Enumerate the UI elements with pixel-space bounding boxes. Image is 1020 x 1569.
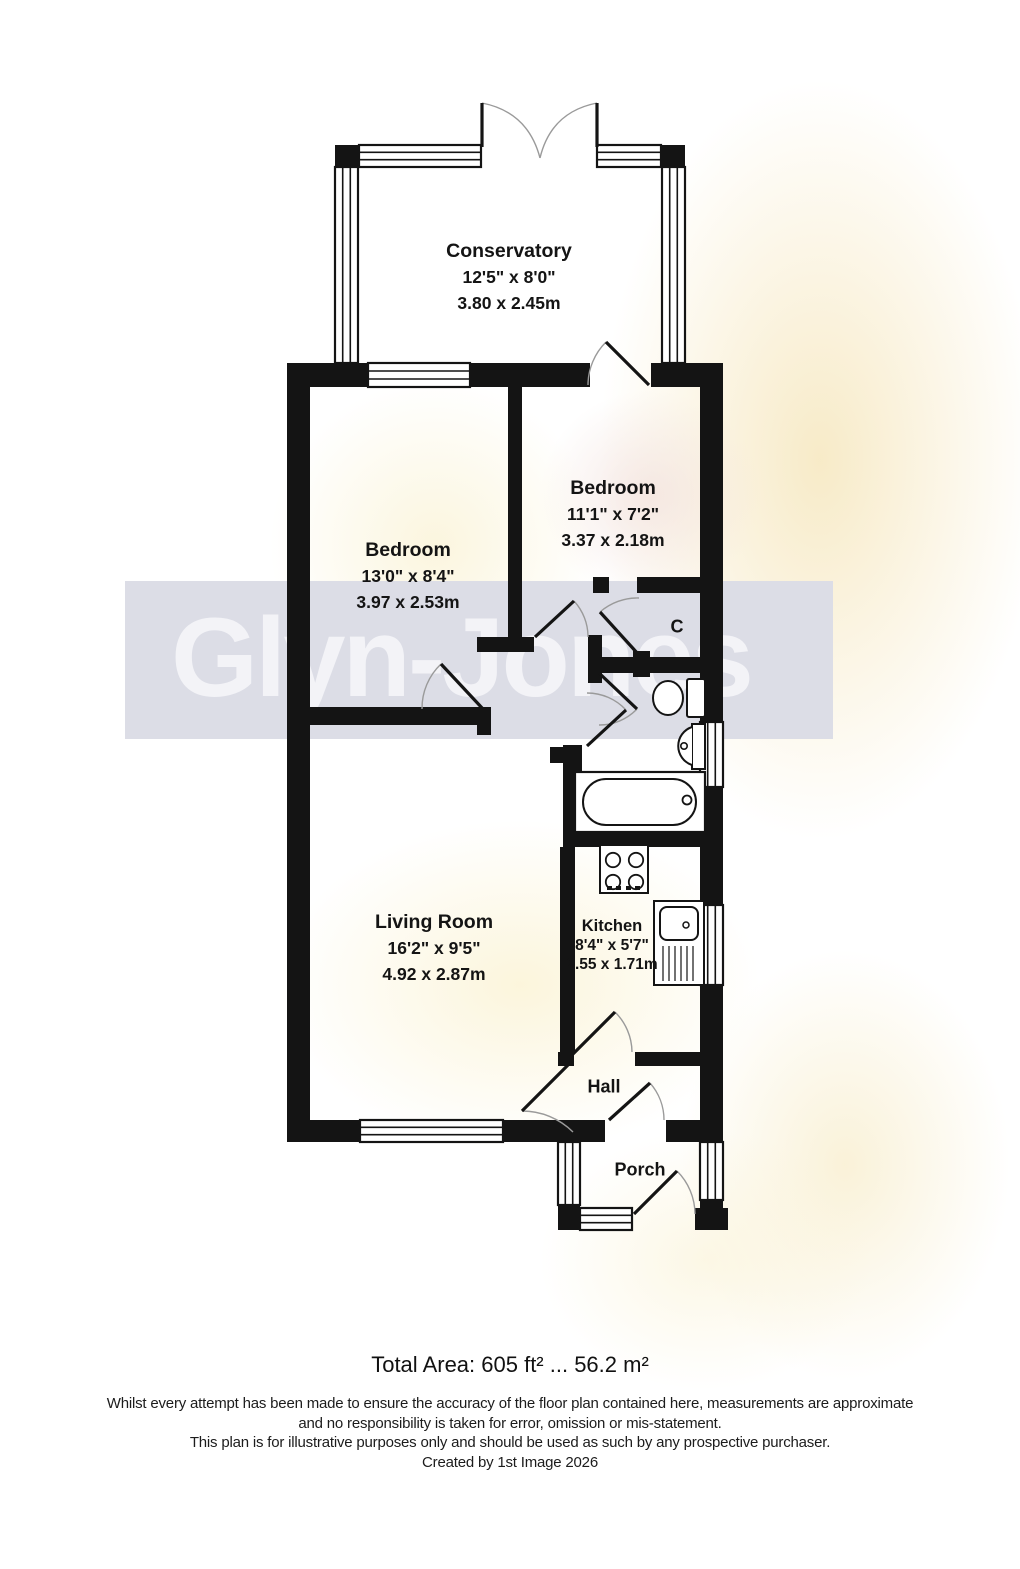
window-icon bbox=[580, 1208, 632, 1230]
room-name: Conservatory bbox=[446, 238, 572, 264]
floorplan-page: Glyn-Jones bbox=[0, 0, 1020, 1569]
room-dims-imperial: 11'1" x 7'2" bbox=[561, 501, 664, 527]
room-label-hall: Hall bbox=[587, 1077, 620, 1098]
room-dims-imperial: 8'4" x 5'7" bbox=[566, 936, 657, 955]
room-name: Bedroom bbox=[561, 475, 664, 501]
bath-icon bbox=[575, 772, 705, 832]
room-dims-metric: 3.80 x 2.45m bbox=[446, 290, 572, 316]
room-label-bedroom1: Bedroom 13'0" x 8'4" 3.97 x 2.53m bbox=[356, 537, 459, 615]
disclaimer-line: and no responsibility is taken for error… bbox=[0, 1414, 1020, 1434]
window-icon bbox=[700, 1142, 723, 1200]
disclaimer-line: This plan is for illustrative purposes o… bbox=[0, 1433, 1020, 1453]
window-icon bbox=[359, 145, 481, 167]
window-icon bbox=[368, 363, 470, 387]
total-area: Total Area: 605 ft² ... 56.2 m² bbox=[0, 1352, 1020, 1378]
disclaimer: Whilst every attempt has been made to en… bbox=[0, 1394, 1020, 1472]
basin-icon bbox=[678, 724, 705, 769]
credit-line: Created by 1st Image 2026 bbox=[0, 1453, 1020, 1473]
disclaimer-line: Whilst every attempt has been made to en… bbox=[0, 1394, 1020, 1414]
hob-icon bbox=[600, 845, 648, 893]
room-label-conservatory: Conservatory 12'5" x 8'0" 3.80 x 2.45m bbox=[446, 238, 572, 316]
toilet-icon bbox=[653, 679, 705, 717]
floorplan-graphic bbox=[0, 0, 1020, 1569]
room-name: Living Room bbox=[375, 909, 493, 935]
room-dims-imperial: 16'2" x 9'5" bbox=[375, 935, 493, 961]
room-label-porch: Porch bbox=[614, 1160, 665, 1181]
room-dims-imperial: 12'5" x 8'0" bbox=[446, 264, 572, 290]
room-label-cupboard: C bbox=[671, 617, 684, 638]
room-label-bedroom2: Bedroom 11'1" x 7'2" 3.37 x 2.18m bbox=[561, 475, 664, 553]
window-icon bbox=[360, 1120, 503, 1142]
window-icon bbox=[662, 167, 685, 363]
room-label-kitchen: Kitchen 8'4" x 5'7" 2.55 x 1.71m bbox=[566, 916, 657, 974]
room-dims-metric: 3.97 x 2.53m bbox=[356, 589, 459, 615]
window-icon bbox=[335, 167, 358, 363]
room-dims-metric: 4.92 x 2.87m bbox=[375, 961, 493, 987]
room-name: Bedroom bbox=[356, 537, 459, 563]
room-dims-imperial: 13'0" x 8'4" bbox=[356, 563, 459, 589]
kitchen-sink-icon bbox=[654, 901, 704, 985]
room-dims-metric: 2.55 x 1.71m bbox=[566, 955, 657, 974]
room-name: Kitchen bbox=[566, 916, 657, 936]
room-dims-metric: 3.37 x 2.18m bbox=[561, 527, 664, 553]
window-icon bbox=[597, 145, 661, 167]
window-icon bbox=[558, 1142, 580, 1205]
room-label-living-room: Living Room 16'2" x 9'5" 4.92 x 2.87m bbox=[375, 909, 493, 987]
